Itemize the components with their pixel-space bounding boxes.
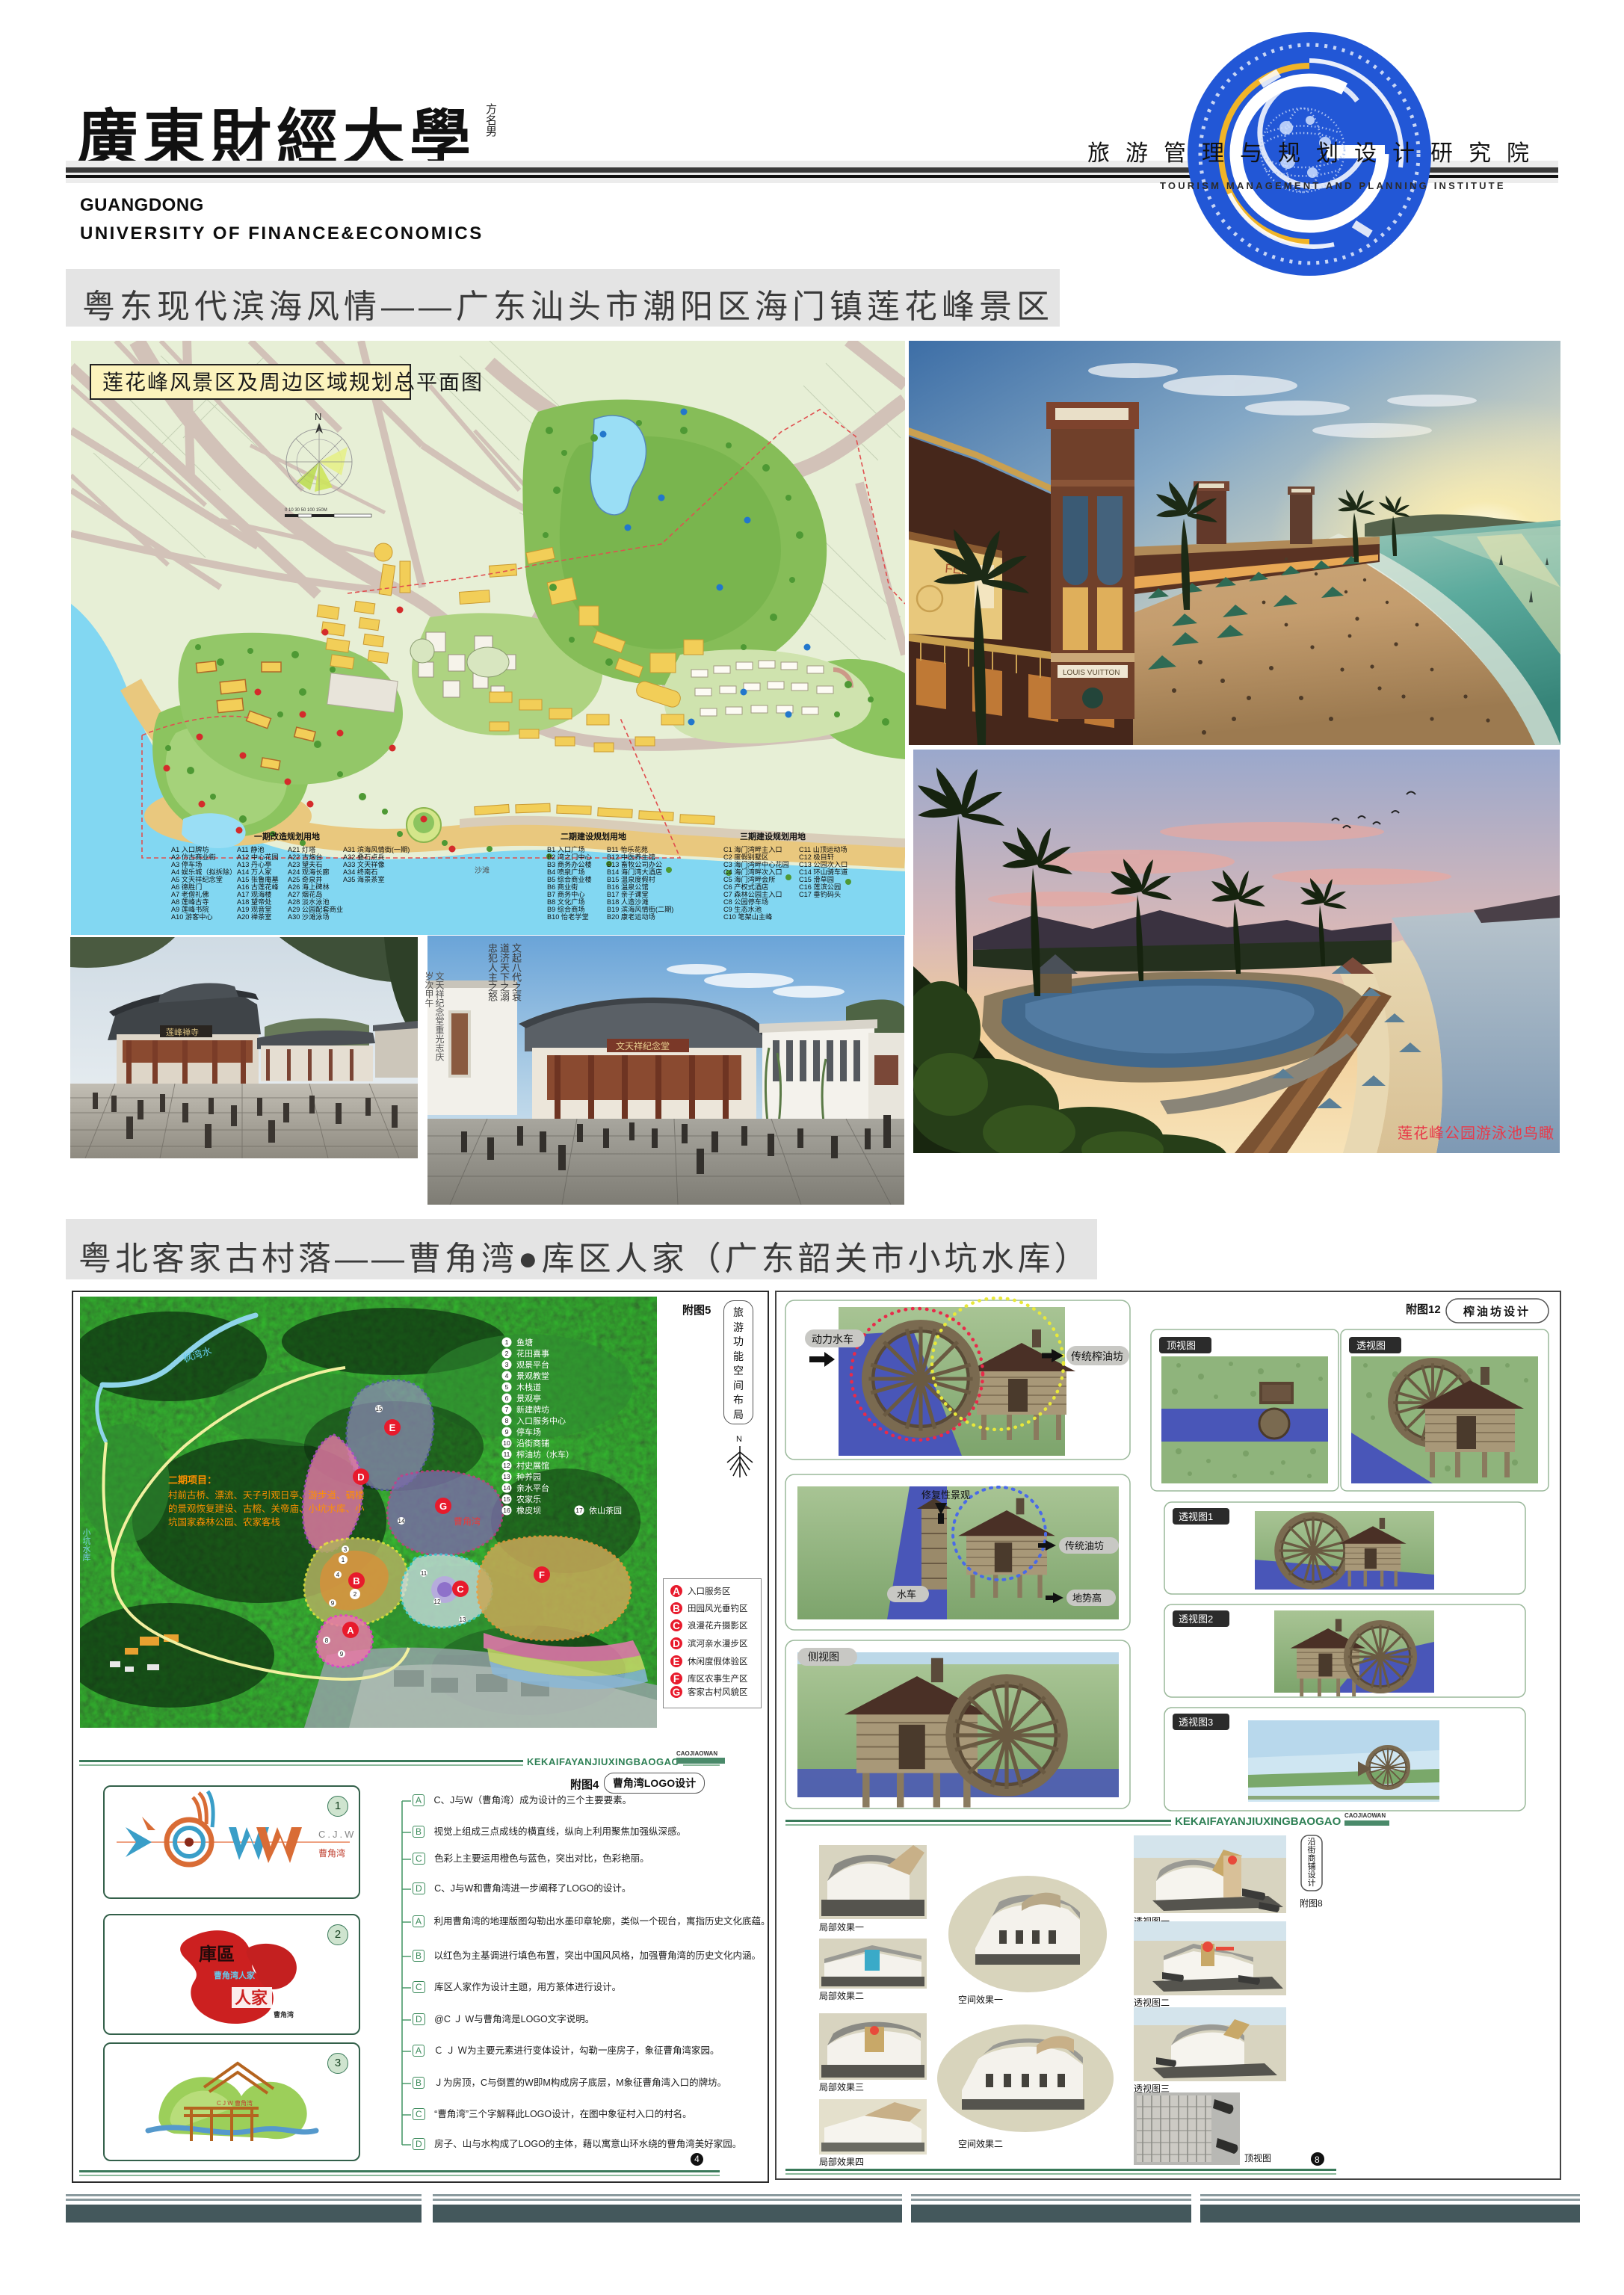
svg-text:8: 8 (1315, 2155, 1320, 2165)
svg-text:2: 2 (505, 1350, 509, 1357)
svg-text:修复性景观: 修复性景观 (921, 1489, 970, 1501)
svg-text:侧视图: 侧视图 (808, 1651, 839, 1663)
svg-text:A5 文天祥纪念堂: A5 文天祥纪念堂 (171, 875, 223, 883)
svg-text:C.J.W: C.J.W (318, 1829, 356, 1840)
svg-text:农家乐: 农家乐 (516, 1494, 541, 1504)
svg-text:D: D (673, 1638, 680, 1649)
svg-text:LOUIS VUITTON: LOUIS VUITTON (1063, 669, 1120, 677)
svg-text:A30 沙滩泳场: A30 沙滩泳场 (288, 912, 330, 921)
svg-text:莲花峰公园游泳池鸟瞰: 莲花峰公园游泳池鸟瞰 (1398, 1125, 1554, 1142)
svg-text:村前古桥、漂流、天子引观日亭、游步道、碉楼: 村前古桥、漂流、天子引观日亭、游步道、碉楼 (168, 1489, 365, 1501)
svg-text:传统油坊: 传统油坊 (1065, 1540, 1104, 1551)
svg-text:A28 淡水泳池: A28 淡水泳池 (288, 898, 330, 906)
svg-text:B18 人造沙滩: B18 人造沙滩 (607, 898, 649, 906)
svg-text:C15 滑草园: C15 滑草园 (799, 875, 834, 883)
svg-text:A14 万人冢: A14 万人冢 (237, 868, 271, 876)
svg-text:种养园: 种养园 (516, 1471, 541, 1482)
svg-text:花田喜事: 花田喜事 (516, 1349, 549, 1359)
svg-text:的景观恢复建设、古榕、关帝庙、小坑水库、小: 的景观恢复建设、古榕、关帝庙、小坑水库、小 (168, 1503, 365, 1514)
svg-text:B6 商业街: B6 商业街 (547, 883, 578, 891)
svg-text:曹角湾: 曹角湾 (274, 2010, 294, 2018)
svg-text:KEKAIFAYANJIUXINGBAOGAO: KEKAIFAYANJIUXINGBAOGAO (1175, 1815, 1342, 1828)
svg-text:休闲度假体验区: 休闲度假体验区 (688, 1656, 748, 1667)
svg-text:A25 奇泉井: A25 奇泉井 (288, 875, 322, 883)
svg-text:B5 综合商业楼: B5 综合商业楼 (547, 875, 592, 883)
svg-text:榨油坊设计: 榨油坊设计 (1463, 1305, 1531, 1318)
svg-text:库区农事生产区: 库区农事生产区 (688, 1673, 748, 1684)
svg-text:C3 海门湾畔中心花园: C3 海门湾畔中心花园 (723, 860, 789, 868)
svg-text:C16 莲滨公园: C16 莲滨公园 (799, 883, 841, 891)
svg-text:A10 游客中心: A10 游客中心 (171, 912, 213, 921)
svg-text:6: 6 (505, 1394, 509, 1402)
svg-text:莲峰禅寺: 莲峰禅寺 (166, 1027, 199, 1037)
svg-text:传统榨油坊: 传统榨油坊 (1071, 1350, 1123, 1362)
svg-text:二期项目：: 二期项目： (168, 1474, 217, 1486)
svg-text:E: E (673, 1656, 679, 1667)
svg-text:12: 12 (503, 1462, 510, 1469)
svg-text:莲花峰风景区及周边区域规划总平面图: 莲花峰风景区及周边区域规划总平面图 (102, 371, 484, 394)
svg-text:橡皮坝: 橡皮坝 (516, 1505, 541, 1516)
svg-text:A19 观音堂: A19 观音堂 (237, 905, 271, 913)
svg-text:局部效果四: 局部效果四 (819, 2156, 864, 2167)
svg-text:C1 海门湾畔主入口: C1 海门湾畔主入口 (723, 845, 782, 853)
svg-text:C17 垂钓码头: C17 垂钓码头 (799, 890, 841, 898)
svg-text:二期建设规划用地: 二期建设规划用地 (561, 831, 626, 841)
svg-text:A8 莲峰古寺: A8 莲峰古寺 (171, 898, 209, 906)
svg-text:4: 4 (336, 1572, 340, 1578)
svg-text:庫區: 庫區 (199, 1945, 235, 1965)
svg-text:A: A (347, 1625, 354, 1636)
svg-text:观景平台: 观景平台 (516, 1359, 549, 1370)
svg-text:一期改造规划用地: 一期改造规划用地 (254, 831, 320, 841)
svg-text:B11 怡乐花苑: B11 怡乐花苑 (607, 845, 648, 853)
svg-text:9: 9 (505, 1428, 509, 1436)
svg-text:B1 入口广场: B1 入口广场 (547, 845, 585, 853)
svg-text:G: G (673, 1687, 681, 1698)
svg-text:14: 14 (503, 1484, 510, 1492)
svg-text:A11 静池: A11 静池 (237, 845, 265, 853)
svg-text:A16 古莲花峰: A16 古莲花峰 (237, 883, 279, 891)
svg-text:新建牌坊: 新建牌坊 (516, 1404, 549, 1415)
svg-text:亲水平台: 亲水平台 (516, 1483, 549, 1493)
svg-text:G: G (439, 1501, 447, 1512)
svg-text:13: 13 (460, 1616, 466, 1623)
svg-text:8: 8 (505, 1417, 509, 1424)
svg-text:C12 极目轩: C12 极目轩 (799, 853, 834, 861)
svg-text:C: C (457, 1584, 464, 1595)
svg-text:A13 丹心亭: A13 丹心亭 (237, 860, 271, 868)
svg-text:N: N (315, 411, 321, 422)
svg-text:A15 张鲁庵墓: A15 张鲁庵墓 (237, 875, 279, 883)
svg-text:A23 望夫石: A23 望夫石 (288, 860, 322, 868)
svg-text:A2 仿古商业街: A2 仿古商业街 (171, 853, 216, 861)
svg-text:13: 13 (503, 1473, 510, 1480)
svg-text:附图8: 附图8 (1300, 1898, 1323, 1909)
svg-text:A1 入口牌坊: A1 入口牌坊 (171, 845, 209, 853)
svg-text:沿街商铺: 沿街商铺 (516, 1438, 549, 1448)
svg-text:B3 商务办公楼: B3 商务办公楼 (547, 860, 592, 868)
svg-text:2: 2 (353, 1591, 357, 1598)
svg-text:3: 3 (344, 1546, 348, 1553)
svg-text:B8 文化广场: B8 文化广场 (547, 898, 585, 906)
svg-text:E: E (389, 1422, 396, 1433)
svg-text:A32 叠石点兵: A32 叠石点兵 (343, 853, 385, 861)
svg-text:C2 度假别墅区: C2 度假别墅区 (723, 853, 768, 861)
svg-text:16: 16 (503, 1507, 510, 1514)
svg-text:入口服务区: 入口服务区 (688, 1586, 731, 1596)
svg-text:空间效果二: 空间效果二 (958, 2138, 1003, 2149)
svg-text:10: 10 (503, 1439, 510, 1447)
svg-text:顶视图: 顶视图 (1244, 2152, 1271, 2163)
svg-text:B16 温泉公馆: B16 温泉公馆 (607, 883, 649, 891)
svg-text:村史展馆: 村史展馆 (516, 1460, 549, 1471)
svg-text:停车场: 停车场 (516, 1427, 541, 1437)
svg-text:C5 海门湾畔会所: C5 海门湾畔会所 (723, 875, 775, 883)
svg-text:A31 滨海风情街(一期): A31 滨海风情街(一期) (343, 845, 410, 853)
svg-text:A22 古炮台: A22 古炮台 (288, 853, 322, 861)
svg-text:透视图: 透视图 (1356, 1340, 1386, 1351)
svg-text:B: B (353, 1575, 359, 1587)
svg-text:A33 文天祥像: A33 文天祥像 (343, 860, 385, 868)
svg-text:5: 5 (505, 1383, 509, 1391)
svg-text:B7 商务中心: B7 商务中心 (547, 890, 585, 898)
svg-text:曹角湾: 曹角湾 (318, 1847, 345, 1859)
svg-text:8: 8 (325, 1637, 329, 1644)
svg-text:1: 1 (505, 1338, 509, 1346)
svg-text:A12 中心花园: A12 中心花园 (237, 853, 279, 861)
svg-text:A6 德胜门: A6 德胜门 (171, 883, 202, 891)
svg-text:透视图三: 透视图三 (1134, 2083, 1170, 2094)
svg-text:C10 笔架山主峰: C10 笔架山主峰 (723, 912, 772, 921)
svg-text:A20 禅茶室: A20 禅茶室 (237, 912, 271, 921)
svg-text:4: 4 (505, 1372, 509, 1380)
svg-text:局部效果二: 局部效果二 (819, 1990, 864, 2001)
svg-text:人家: 人家 (235, 1989, 268, 2007)
svg-text:A21 灯塔: A21 灯塔 (288, 845, 315, 853)
svg-text:地势高: 地势高 (1072, 1593, 1102, 1604)
svg-text:A3 停车场: A3 停车场 (171, 860, 202, 868)
svg-text:透视图1: 透视图1 (1179, 1511, 1213, 1522)
svg-text:A35 海景茶室: A35 海景茶室 (343, 875, 385, 883)
svg-text:鱼塘: 鱼塘 (516, 1337, 533, 1347)
svg-text:曹角湾人家: 曹角湾人家 (214, 1970, 256, 1980)
svg-text:商: 商 (1308, 1853, 1316, 1863)
svg-text:B19 滨海风情街(二期): B19 滨海风情街(二期) (607, 905, 673, 913)
svg-text:依山茶园: 依山茶园 (589, 1506, 622, 1516)
svg-text:坑国家森林公园、农家客栈: 坑国家森林公园、农家客栈 (168, 1516, 280, 1528)
svg-text:B15 温泉度假村: B15 温泉度假村 (607, 875, 655, 883)
svg-text:景观亭: 景观亭 (516, 1393, 541, 1403)
svg-text:C13 公园次入口: C13 公园次入口 (799, 860, 847, 868)
svg-text:B13 畜牧公司办公: B13 畜牧公司办公 (607, 860, 662, 868)
svg-text:C J W 曹角湾: C J W 曹角湾 (217, 2099, 253, 2107)
svg-text:C: C (673, 1620, 680, 1631)
svg-text:水车: 水车 (897, 1589, 916, 1600)
svg-text:榨油坊（水车）: 榨油坊（水车） (516, 1449, 574, 1460)
svg-text:动力水车: 动力水车 (812, 1333, 853, 1345)
svg-text:B4 喷泉广场: B4 喷泉广场 (547, 868, 585, 876)
svg-text:15: 15 (503, 1495, 510, 1503)
svg-text:11: 11 (504, 1451, 510, 1458)
svg-text:A24 观海长廊: A24 观海长廊 (288, 868, 330, 876)
svg-text:C6 产权式酒店: C6 产权式酒店 (723, 883, 768, 891)
svg-text:文天祥纪念堂: 文天祥纪念堂 (616, 1040, 670, 1051)
svg-text:A29 公园配套商业: A29 公园配套商业 (288, 905, 343, 913)
svg-text:CAOJIAOWAN: CAOJIAOWAN (1344, 1812, 1386, 1819)
svg-text:A4 娱乐城（拟拆除）: A4 娱乐城（拟拆除） (171, 868, 236, 876)
svg-text:B12 中医养生馆: B12 中医养生馆 (607, 853, 655, 861)
svg-text:D: D (357, 1471, 364, 1483)
svg-text:透视图2: 透视图2 (1179, 1613, 1213, 1625)
svg-text:景观教堂: 景观教堂 (516, 1371, 549, 1381)
svg-text:木栈道: 木栈道 (516, 1382, 541, 1392)
svg-text:计: 计 (1308, 1878, 1316, 1888)
svg-text:F: F (539, 1569, 545, 1581)
svg-text:1: 1 (342, 1557, 345, 1563)
svg-text:B17 亲子课堂: B17 亲子课堂 (607, 890, 649, 898)
svg-text:7: 7 (505, 1406, 509, 1413)
svg-text:9: 9 (331, 1600, 335, 1607)
svg-text:小坑水库: 小坑水库 (81, 1528, 91, 1562)
svg-text:B: B (673, 1603, 680, 1614)
svg-text:11: 11 (421, 1570, 427, 1577)
svg-text:14: 14 (398, 1518, 405, 1525)
svg-text:B9 综合商场: B9 综合商场 (547, 905, 585, 913)
svg-text:F: F (673, 1673, 679, 1684)
svg-text:17: 17 (575, 1507, 583, 1514)
svg-text:滨河亲水漫步区: 滨河亲水漫步区 (688, 1638, 748, 1649)
svg-text:N: N (736, 1435, 742, 1444)
svg-text:B20 康老运动场: B20 康老运动场 (607, 912, 655, 921)
svg-text:C11 山顶运动场: C11 山顶运动场 (799, 846, 847, 853)
svg-text:A9 莲峰书院: A9 莲峰书院 (171, 905, 209, 913)
svg-text:三期建设规划用地: 三期建设规划用地 (740, 831, 806, 841)
svg-text:浪漫花卉摄影区: 浪漫花卉摄影区 (688, 1620, 748, 1631)
svg-text:透视图3: 透视图3 (1179, 1717, 1213, 1728)
svg-text:C8 公园停车场: C8 公园停车场 (723, 898, 768, 906)
svg-text:B2 湾之门中心: B2 湾之门中心 (547, 853, 592, 861)
svg-text:B14 海门湾大酒店: B14 海门湾大酒店 (607, 868, 662, 876)
svg-text:客家古村风貌区: 客家古村风貌区 (688, 1687, 748, 1697)
svg-text:田园风光垂钓区: 田园风光垂钓区 (688, 1603, 748, 1613)
svg-text:入口服务中心: 入口服务中心 (516, 1416, 566, 1426)
svg-text:C9 生态水池: C9 生态水池 (723, 905, 762, 913)
svg-text:A7 老僧礼佛: A7 老僧礼佛 (171, 890, 209, 898)
svg-text:局部效果一: 局部效果一 (819, 1921, 864, 1933)
svg-text:A34 终南石: A34 终南石 (343, 868, 377, 876)
svg-text:局部效果三: 局部效果三 (819, 2081, 864, 2092)
svg-text:3: 3 (505, 1361, 509, 1368)
svg-text:A17 观海楼: A17 观海楼 (237, 890, 271, 898)
svg-text:A26 海上碑林: A26 海上碑林 (288, 883, 330, 891)
svg-text:A27 烟花岛: A27 烟花岛 (288, 890, 322, 898)
svg-text:C4 海门湾畔次入口: C4 海门湾畔次入口 (723, 868, 782, 876)
svg-text:B10 怡老学堂: B10 怡老学堂 (547, 912, 589, 921)
svg-text:A18 望帝处: A18 望帝处 (237, 898, 271, 906)
svg-text:12: 12 (434, 1599, 441, 1605)
svg-text:0 10 30 50 100 150M: 0 10 30 50 100 150M (285, 508, 327, 513)
svg-text:附图12: 附图12 (1406, 1303, 1441, 1316)
svg-text:A: A (673, 1586, 680, 1597)
svg-text:街: 街 (1308, 1844, 1316, 1855)
svg-text:顶视图: 顶视图 (1167, 1340, 1196, 1351)
svg-text:沙滩: 沙滩 (475, 865, 490, 875)
svg-text:曹角湾: 曹角湾 (454, 1516, 481, 1527)
svg-text:C7 森林公园主入口: C7 森林公园主入口 (723, 890, 782, 898)
svg-text:9: 9 (340, 1651, 344, 1658)
svg-text:透视图二: 透视图二 (1134, 1997, 1170, 2008)
svg-text:C14 环山骑车道: C14 环山骑车道 (799, 868, 847, 876)
svg-text:15: 15 (376, 1406, 383, 1412)
svg-text:空间效果一: 空间效果一 (958, 1994, 1003, 2005)
